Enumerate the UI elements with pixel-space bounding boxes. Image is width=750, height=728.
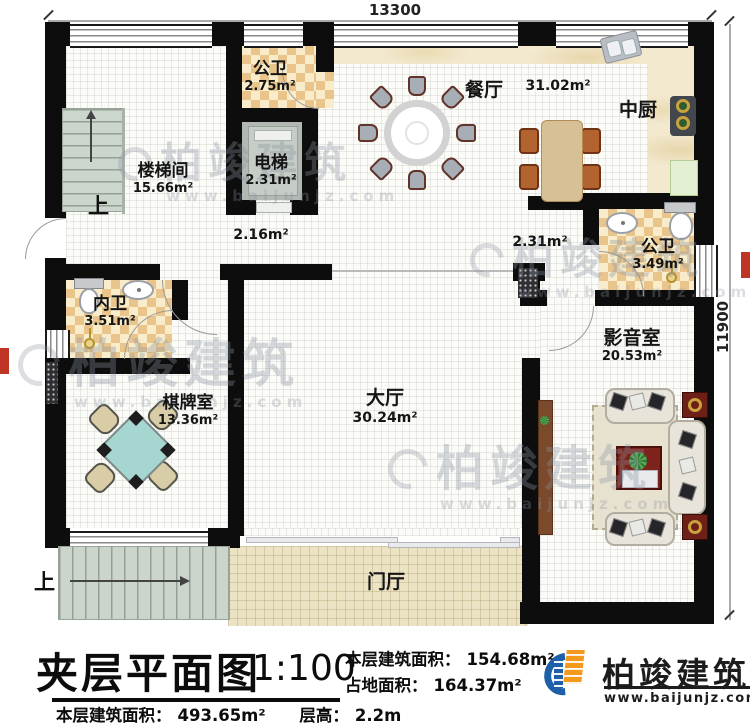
total-area-value: 493.65m² bbox=[178, 706, 266, 725]
window bbox=[334, 24, 518, 48]
burner-icon bbox=[676, 116, 690, 130]
room-name: 公卫 bbox=[228, 60, 312, 80]
room-label-foyer: 门厅 bbox=[346, 572, 426, 594]
hall-floor-strip bbox=[244, 528, 520, 536]
floor-area-value: 154.68m² bbox=[467, 650, 555, 669]
room-area: 2.31m² bbox=[500, 234, 580, 250]
room-name: 内卫 bbox=[73, 295, 147, 315]
room-area: 15.66m² bbox=[121, 182, 205, 197]
kitchen-chair bbox=[519, 164, 539, 190]
watermark-text: 柏竣建筑 bbox=[436, 441, 652, 497]
side-table bbox=[682, 392, 708, 418]
wall bbox=[518, 22, 556, 46]
room-area: 20.53m² bbox=[590, 350, 674, 365]
room-name: 大厅 bbox=[345, 388, 425, 410]
corridor-area-left: 2.16m² bbox=[221, 227, 301, 243]
exterior-staircase bbox=[58, 546, 230, 620]
room-area: 2.16m² bbox=[221, 227, 301, 243]
total-area-label: 本层建筑面积： bbox=[56, 706, 172, 725]
window bbox=[244, 24, 303, 48]
kitchen-chair bbox=[581, 128, 601, 154]
watermark-logo-icon bbox=[380, 441, 436, 497]
room-label-bath-inner: 内卫 3.51m² bbox=[73, 295, 147, 329]
kitchen-table bbox=[541, 120, 583, 202]
plant-icon bbox=[540, 416, 549, 425]
stairs-up-label: 上 bbox=[88, 190, 109, 220]
company-logo-icon bbox=[545, 646, 597, 704]
room-name: 餐厅 bbox=[444, 80, 524, 102]
stairs-up-label-exterior: 上 bbox=[34, 566, 55, 596]
room-area: 13.36m² bbox=[146, 414, 230, 429]
room-area: 30.24m² bbox=[345, 410, 425, 426]
burner-icon bbox=[676, 99, 690, 113]
room-label-bath-top: 公卫 2.75m² bbox=[228, 60, 312, 94]
sink-basin bbox=[621, 38, 638, 57]
dining-chair bbox=[408, 76, 426, 96]
company-url: www.baijunjz.com bbox=[604, 686, 750, 706]
room-name: 棋牌室 bbox=[146, 394, 230, 414]
room-area: 3.51m² bbox=[73, 315, 147, 330]
floor-plan-page: 13300 11900 bbox=[0, 0, 750, 728]
watermark: 柏竣建筑 www.baijunjz.com bbox=[388, 442, 673, 512]
floor-height-label: 层高： bbox=[299, 706, 349, 725]
room-area: 3.49m² bbox=[615, 258, 701, 273]
room-name: 中厨 bbox=[598, 100, 678, 122]
room-area: 2.31m² bbox=[231, 174, 311, 189]
room-label-bath-right: 公卫 3.49m² bbox=[615, 238, 701, 272]
sliding-door bbox=[246, 537, 398, 543]
room-label-media: 影音室 20.53m² bbox=[590, 328, 674, 365]
dining-chair bbox=[456, 124, 476, 142]
wall bbox=[520, 602, 714, 624]
land-area-value: 164.37m² bbox=[434, 676, 522, 695]
room-label-stair-hall: 楼梯间 15.66m² bbox=[121, 162, 205, 196]
side-table bbox=[682, 514, 708, 540]
room-label-dining: 餐厅 bbox=[444, 80, 524, 102]
floor-area-row: 本层建筑面积：154.68m² bbox=[345, 646, 555, 670]
watermark-logo-icon bbox=[10, 336, 68, 394]
land-area-label: 占地面积： bbox=[345, 676, 428, 695]
room-name: 楼梯间 bbox=[121, 162, 205, 182]
room-area: 2.75m² bbox=[228, 80, 312, 95]
room-label-elevator: 电梯 2.31m² bbox=[231, 154, 311, 188]
exterior-stair-arrowhead bbox=[180, 576, 190, 586]
watermark-url: www.baijunjz.com bbox=[518, 285, 750, 300]
room-area-dining: 31.02m² bbox=[518, 78, 598, 94]
stair-arrow bbox=[90, 118, 92, 162]
exterior-stair-arrow bbox=[70, 580, 182, 582]
dimension-tick bbox=[43, 10, 54, 21]
plan-scale: 1:100 bbox=[252, 648, 356, 689]
sink-icon bbox=[606, 212, 638, 234]
logo-building-orange bbox=[563, 650, 585, 684]
room-area: 31.02m² bbox=[518, 78, 598, 94]
room-label-hall-main: 大厅 30.24m² bbox=[345, 388, 425, 426]
watermark-text: 柏竣建筑 bbox=[68, 335, 300, 395]
dimension-line-top bbox=[48, 20, 712, 22]
room-name: 电梯 bbox=[231, 154, 311, 174]
plan-title: 夹层平面图 bbox=[36, 640, 261, 701]
room-name: 公卫 bbox=[615, 238, 701, 258]
land-area-row: 占地面积：164.37m² bbox=[345, 672, 522, 696]
dimension-right: 11900 bbox=[714, 292, 732, 362]
stair-arrowhead bbox=[86, 110, 96, 119]
door-arc bbox=[25, 218, 66, 259]
window bbox=[70, 24, 212, 48]
wall bbox=[316, 22, 334, 72]
floor-height-value: 2.2m bbox=[355, 706, 401, 725]
logo-building-blue bbox=[554, 658, 563, 688]
watermark-url: www.baijunjz.com bbox=[440, 497, 673, 512]
title-underline bbox=[52, 698, 340, 702]
sliding-door bbox=[500, 537, 520, 543]
room-name: 门厅 bbox=[346, 572, 426, 594]
room-name: 影音室 bbox=[590, 328, 674, 350]
dimension-top: 13300 bbox=[345, 1, 445, 19]
red-stamp bbox=[0, 348, 9, 374]
corridor-area-right: 2.31m² bbox=[500, 234, 580, 250]
dimension-tick bbox=[706, 10, 717, 21]
room-label-kitchen: 中厨 bbox=[598, 100, 678, 122]
room-label-game: 棋牌室 13.36m² bbox=[146, 394, 230, 428]
wall bbox=[45, 528, 70, 548]
dining-chair bbox=[408, 170, 426, 190]
floor-area-label: 本层建筑面积： bbox=[345, 650, 461, 669]
total-area-row: 本层建筑面积：493.65m² 层高：2.2m bbox=[56, 702, 401, 726]
kitchen-chair bbox=[519, 128, 539, 154]
kitchen-chair bbox=[581, 164, 601, 190]
kitchen-board bbox=[670, 160, 698, 196]
wall bbox=[694, 22, 714, 245]
